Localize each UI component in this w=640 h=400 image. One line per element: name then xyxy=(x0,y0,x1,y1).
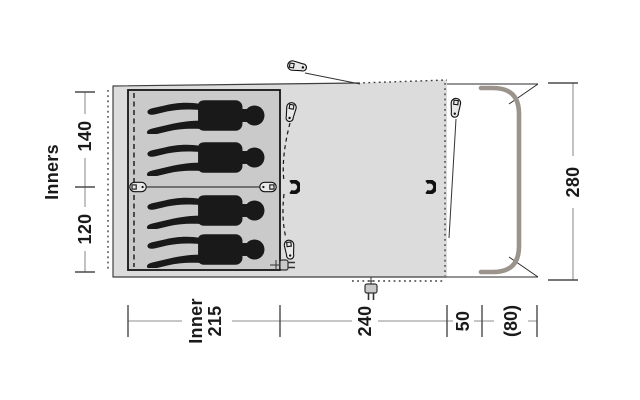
dim-label-inners: Inners xyxy=(42,144,62,200)
dim-label-50: 50 xyxy=(453,311,473,332)
front-pole xyxy=(481,88,519,272)
dim-label-280: 280 xyxy=(563,167,583,198)
dim-label-inner-word: Inner xyxy=(186,298,206,344)
toggle-clip-icon-top-guy xyxy=(287,60,307,73)
plug-body-2 xyxy=(365,284,377,293)
dim-label-80: (80) xyxy=(501,305,521,337)
dim-label-240: 240 xyxy=(355,306,375,337)
dimension-left-inners: 140 120 Inners xyxy=(42,92,95,272)
zipper-pull-icon-right xyxy=(260,182,276,191)
dim-label-inner-215: Inner 215 xyxy=(186,298,225,344)
floorplan-svg: 140 120 Inners 280 Inner 215 240 50 (80) xyxy=(0,0,640,400)
plug-prongs-2 xyxy=(369,293,374,300)
dimension-right-depth: 280 xyxy=(548,83,583,280)
door-cord-front xyxy=(449,119,456,238)
dimension-bottom: Inner 215 240 50 (80) xyxy=(128,298,537,344)
plug-icon-front xyxy=(365,277,377,300)
plug-body xyxy=(280,260,288,270)
tent-floorplan-diagram: 140 120 Inners 280 Inner 215 240 50 (80) xyxy=(0,0,640,400)
zipper-pull-icon-left xyxy=(130,182,146,191)
toggle-clip-icon-front xyxy=(450,98,461,118)
guy-cord-top xyxy=(305,73,360,84)
dim-label-120: 120 xyxy=(75,214,95,245)
dim-label-140: 140 xyxy=(75,121,95,152)
dim-label-215: 215 xyxy=(205,306,225,337)
